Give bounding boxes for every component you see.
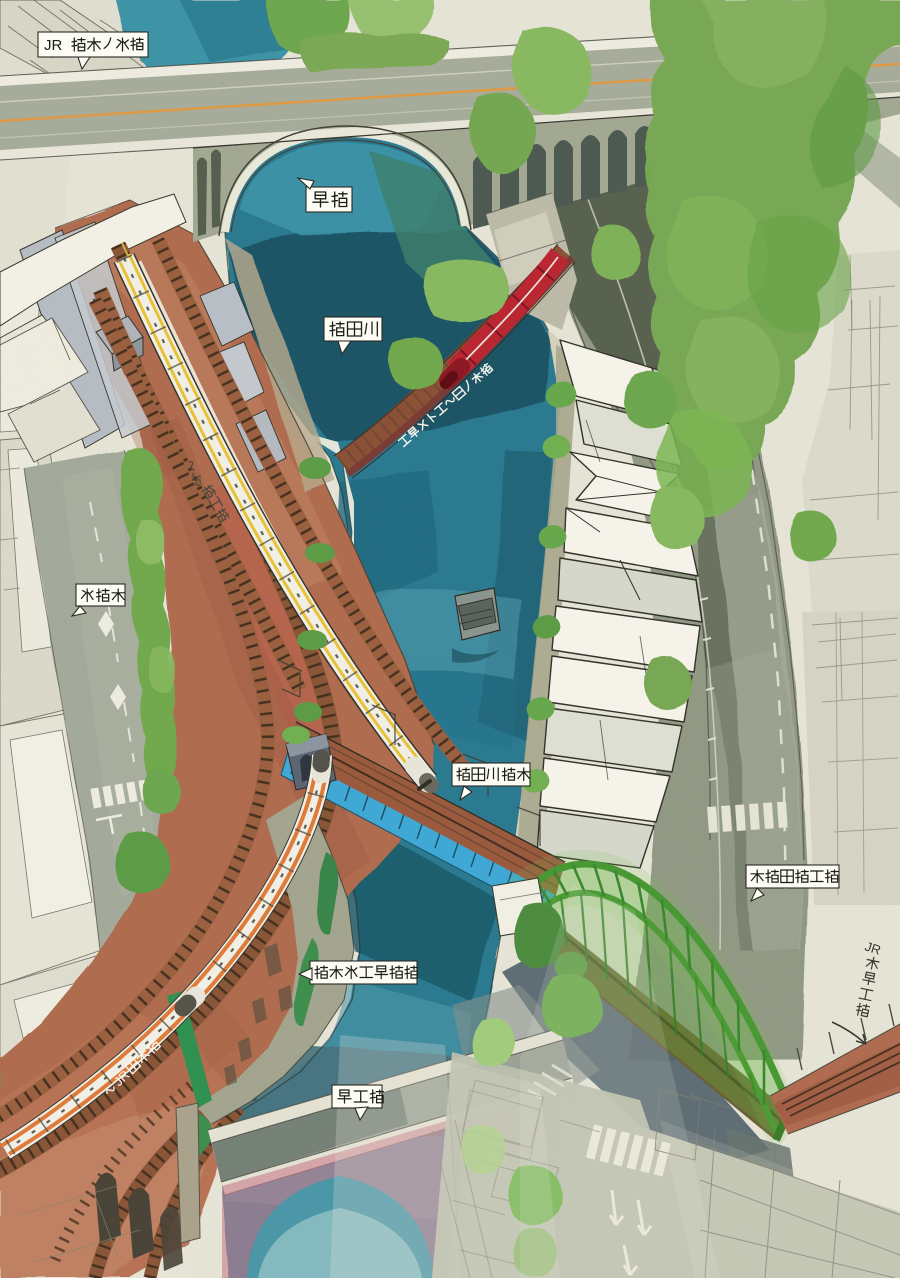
svg-text:JR: JR xyxy=(189,472,204,487)
svg-text:JR: JR xyxy=(44,37,63,54)
